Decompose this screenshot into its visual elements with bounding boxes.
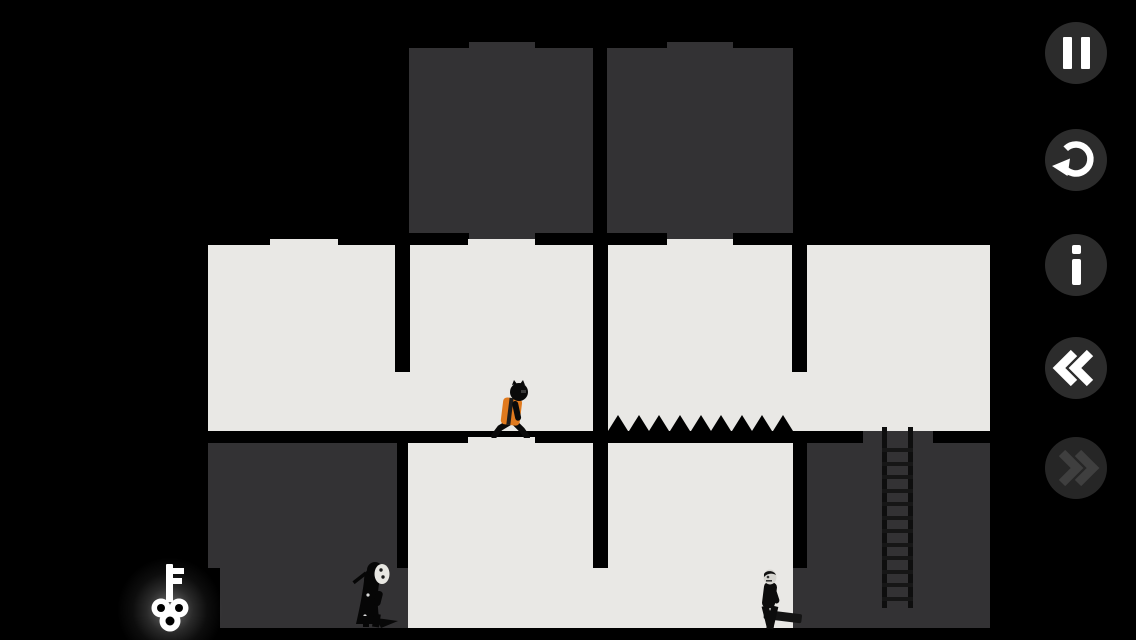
spike xyxy=(608,415,628,431)
ladder-rung xyxy=(882,516,913,520)
ladder-rung xyxy=(882,556,913,560)
block-top-left xyxy=(409,48,593,233)
platform-middle-tab-1 xyxy=(270,239,338,245)
game-stage[interactable] xyxy=(0,0,1136,640)
spike xyxy=(649,415,669,431)
hanging-wall-right xyxy=(792,245,807,372)
block-top-left-tab-top xyxy=(469,42,535,48)
ground-band xyxy=(208,628,990,640)
ladder-rung xyxy=(882,502,913,506)
spike xyxy=(691,415,711,431)
spike xyxy=(711,415,731,431)
enemy-masked-reaper xyxy=(348,558,400,628)
spike xyxy=(629,415,649,431)
ladder[interactable] xyxy=(880,427,915,608)
ladder-rung xyxy=(882,583,913,587)
ladder-rung xyxy=(882,529,913,533)
fast-forward-button[interactable] xyxy=(1045,437,1107,499)
key-pickup-icon[interactable] xyxy=(145,558,195,638)
ladder-rung xyxy=(882,462,913,466)
block-bottom-light-1 xyxy=(408,443,593,628)
info-button[interactable] xyxy=(1045,234,1107,296)
doorway-bottom-2 xyxy=(593,568,608,628)
rewind-icon xyxy=(1045,337,1107,399)
spike xyxy=(732,415,752,431)
ladder-rung xyxy=(882,448,913,452)
ladder-rung xyxy=(882,489,913,493)
spike xyxy=(670,415,690,431)
ladder-rung xyxy=(882,570,913,574)
ladder-rung xyxy=(882,475,913,479)
wall-middle-full xyxy=(593,245,608,431)
wall-bottom-2 xyxy=(593,443,608,568)
platform-middle-tab-3 xyxy=(667,239,733,245)
player-character xyxy=(488,380,544,438)
floor-band-right xyxy=(933,431,990,443)
rewind-button[interactable] xyxy=(1045,337,1107,399)
ladder-rung xyxy=(882,543,913,547)
spike-strip xyxy=(608,415,793,431)
hanging-wall-left xyxy=(395,245,410,372)
restart-icon xyxy=(1045,129,1107,191)
spike xyxy=(752,415,772,431)
fast-forward-icon xyxy=(1045,437,1107,499)
platform-middle-tab-2 xyxy=(468,239,535,245)
spike xyxy=(773,415,793,431)
block-top-right-tab-top xyxy=(667,42,733,48)
wall-bottom-1 xyxy=(397,443,408,568)
wall-bottom-3 xyxy=(793,443,807,568)
info-icon xyxy=(1072,245,1081,285)
pause-icon xyxy=(1063,37,1090,69)
block-top-right xyxy=(607,48,793,233)
enemy-club-carrier xyxy=(750,568,802,630)
restart-button[interactable] xyxy=(1045,129,1107,191)
pause-button[interactable] xyxy=(1045,22,1107,84)
ladder-rung xyxy=(882,597,913,601)
